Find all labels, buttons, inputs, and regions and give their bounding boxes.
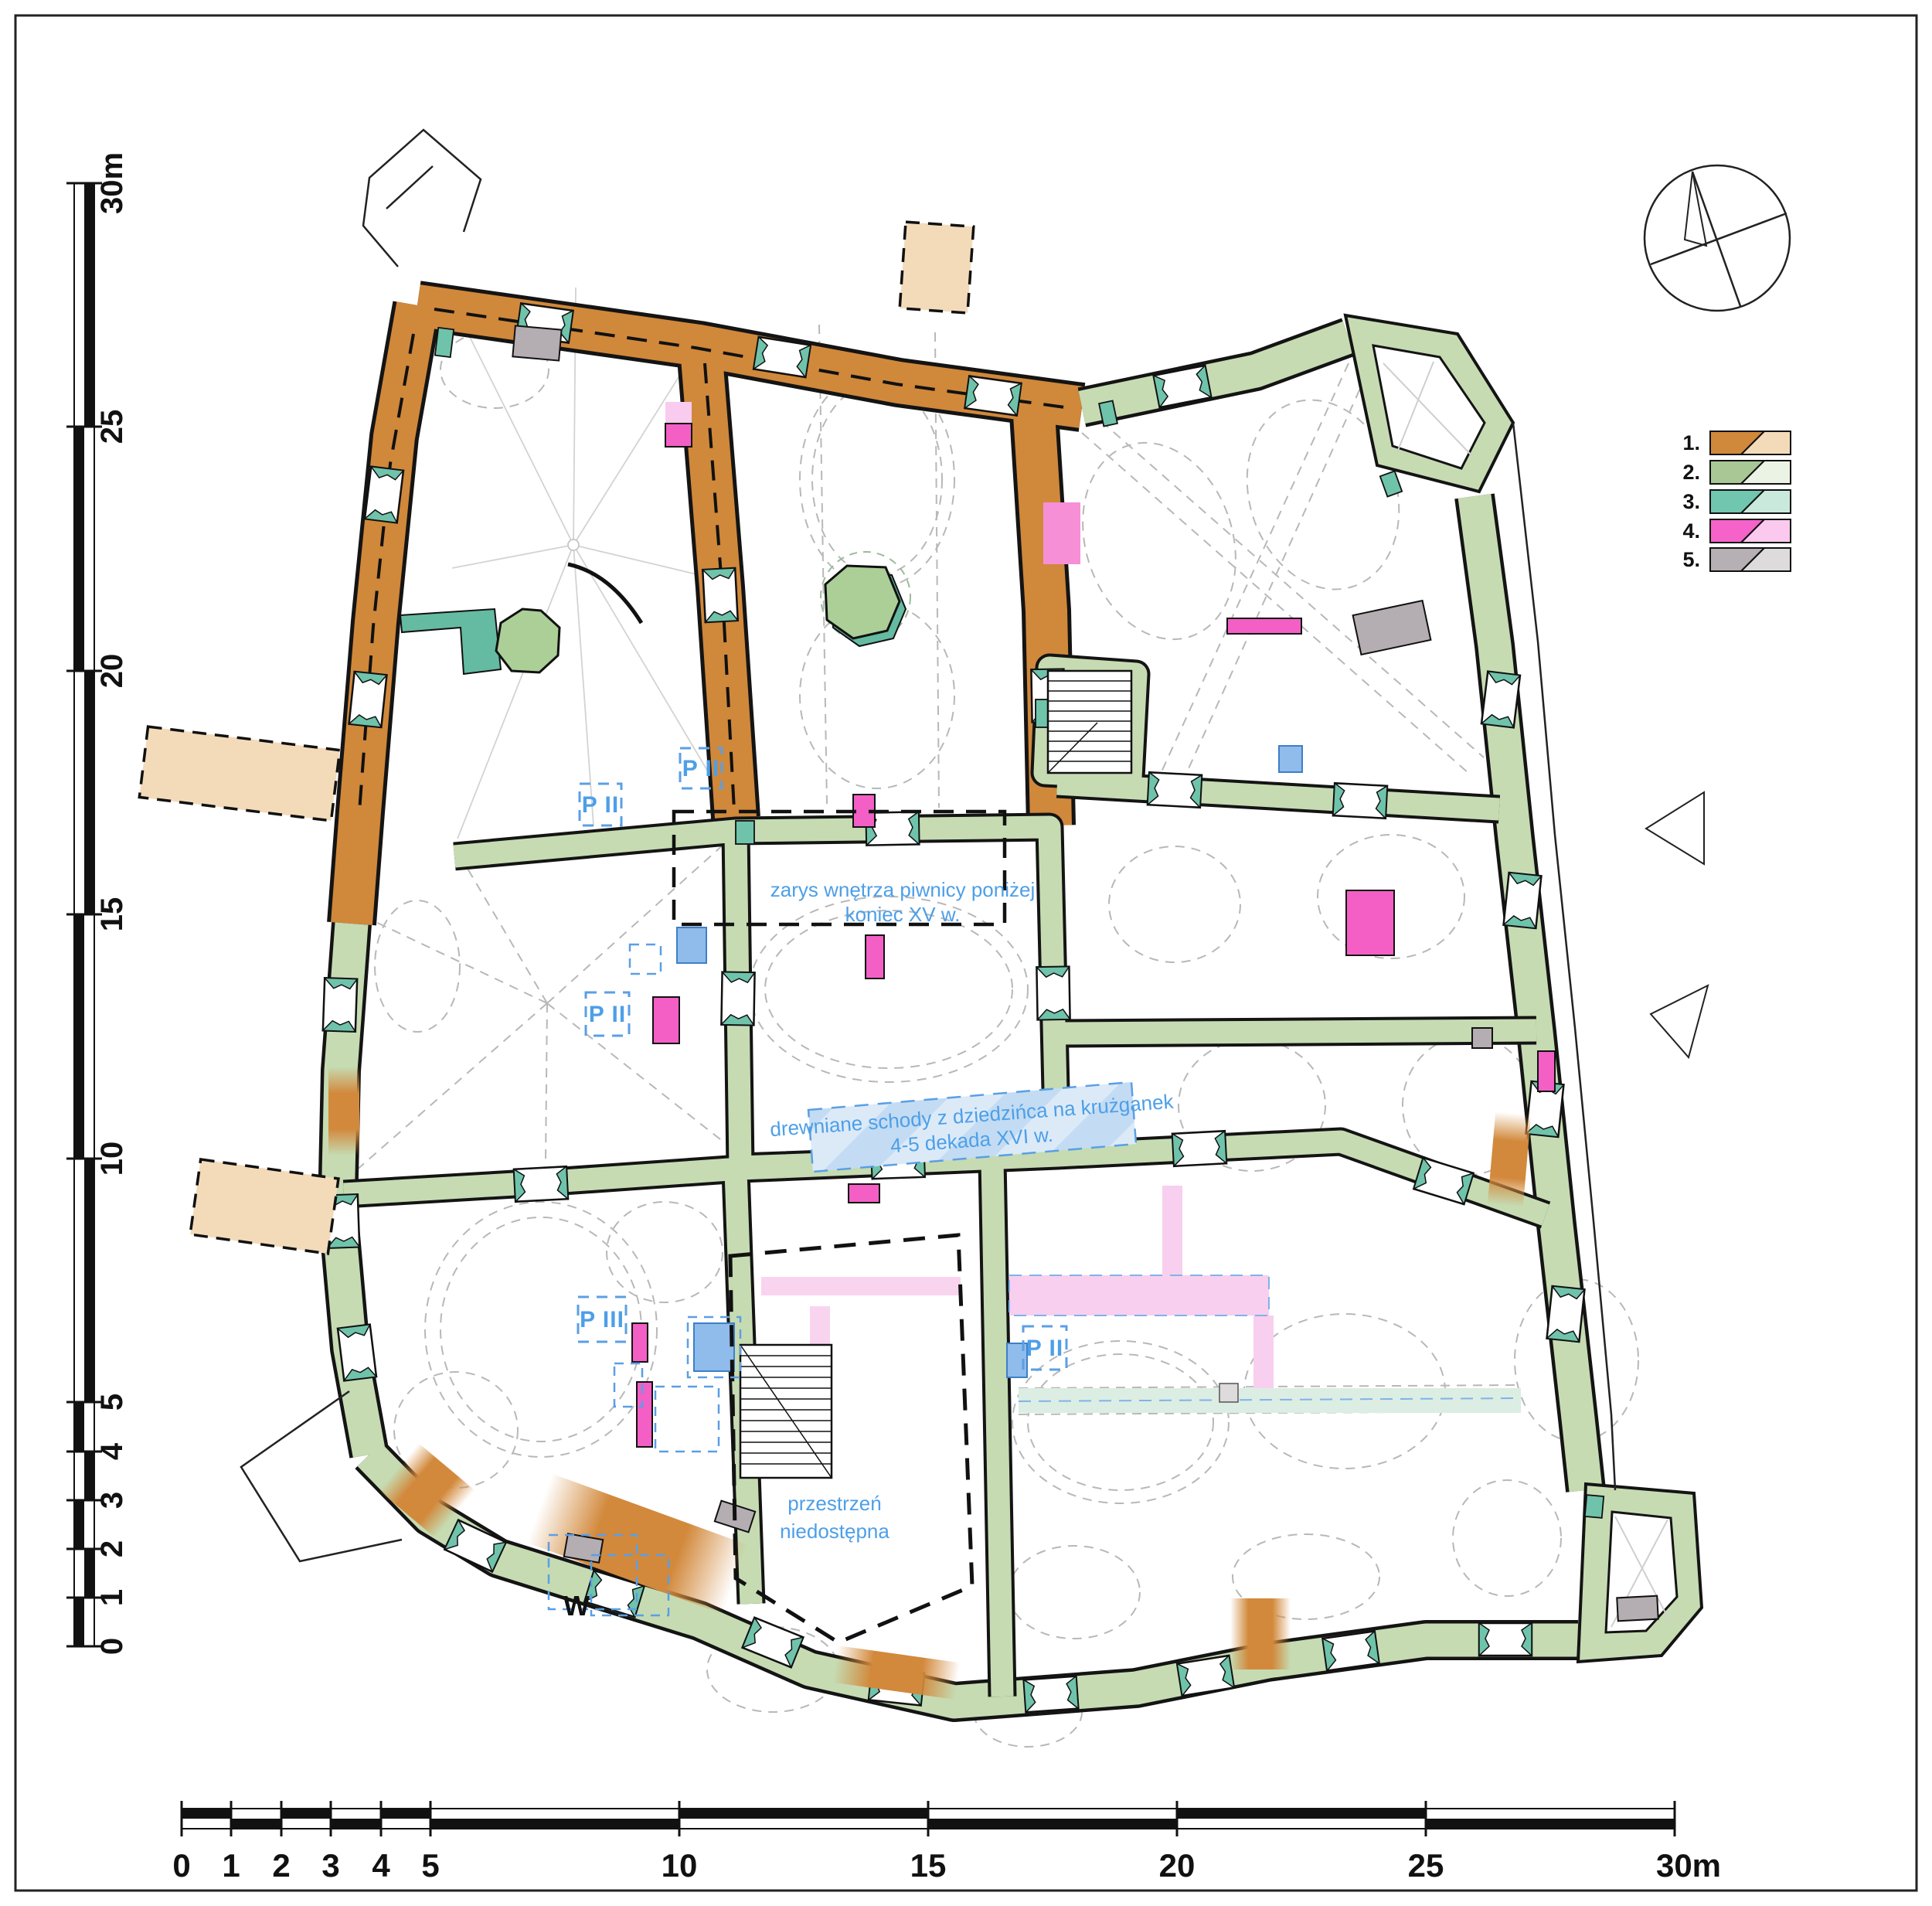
hscale-2: 2 (272, 1847, 290, 1884)
hscale-10: 10 (662, 1847, 698, 1884)
vscale-20: 20 (95, 654, 129, 689)
hscale-20: 20 (1159, 1847, 1196, 1884)
level-p2-b: P II (582, 792, 619, 818)
hscale-0: 0 (172, 1847, 190, 1884)
vscale-1: 1 (95, 1589, 129, 1606)
vscale-2: 2 (95, 1540, 129, 1557)
vscale-25: 25 (95, 410, 129, 444)
inaccessible-label-line2: niedostępna (780, 1520, 889, 1543)
hscale-15: 15 (910, 1847, 947, 1884)
vscale-4: 4 (95, 1442, 129, 1460)
level-p2-c: P II (589, 1002, 626, 1027)
hscale-5: 5 (421, 1847, 439, 1884)
legend-row-1: 1. (1682, 431, 1791, 454)
inaccessible-label-line1: przestrzeń (787, 1492, 881, 1515)
vscale-3: 3 (95, 1492, 129, 1509)
hscale-25: 25 (1408, 1847, 1444, 1884)
hscale-3: 3 (321, 1847, 339, 1884)
legend-label-5: 5. (1682, 548, 1700, 571)
legend: 1. 2. 3. 4. 5. (1682, 431, 1791, 571)
legend-label-1: 1. (1682, 431, 1700, 454)
legend-row-2: 2. (1682, 461, 1791, 484)
level-p2-a: P II (682, 756, 719, 781)
legend-row-5: 5. (1682, 548, 1791, 571)
hscale-4: 4 (372, 1847, 390, 1884)
entrance-label: W (563, 1590, 590, 1622)
staircase-east (1048, 671, 1131, 773)
floor-plan-drawing: zarys wnętrza piwnicy poniżej koniec XV … (0, 0, 1932, 1906)
legend-label-2: 2. (1682, 461, 1700, 484)
legend-label-4: 4. (1682, 519, 1700, 543)
hscale-30m: 30m (1656, 1847, 1721, 1884)
floor-plan-page: zarys wnętrza piwnicy poniżej koniec XV … (0, 0, 1932, 1906)
vscale-0: 0 (95, 1638, 129, 1655)
vscale-10: 10 (95, 1142, 129, 1176)
legend-label-3: 3. (1682, 490, 1700, 513)
vscale-30m: 30m (95, 152, 129, 214)
vscale-5: 5 (95, 1394, 129, 1411)
cellar-label-line2: koniec XV w. (845, 903, 961, 926)
staircase-south (740, 1345, 832, 1478)
hscale-1: 1 (222, 1847, 240, 1884)
level-p2-d: P II (1026, 1336, 1063, 1361)
cellar-label-line1: zarys wnętrza piwnicy poniżej (770, 878, 1035, 901)
vscale-15: 15 (95, 897, 129, 932)
legend-row-3: 3. (1682, 490, 1791, 513)
level-p3: P III (580, 1307, 624, 1332)
legend-row-4: 4. (1682, 519, 1791, 543)
